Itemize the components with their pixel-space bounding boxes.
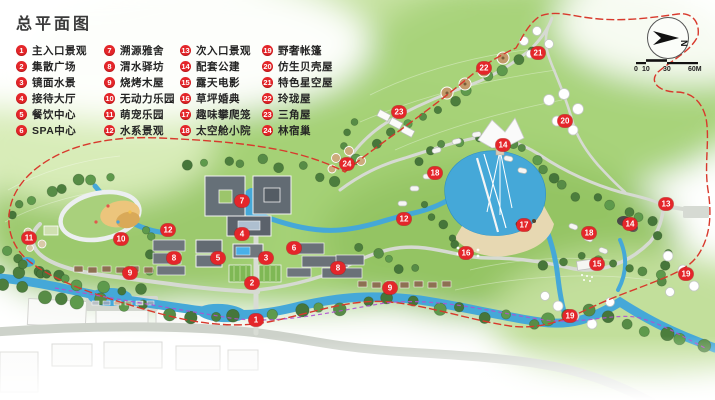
legend-item-12: 12水系景观 bbox=[104, 122, 180, 138]
legend-item-label: 趣味攀爬笼 bbox=[196, 107, 251, 122]
scale-bar: 0 10 30 60M bbox=[630, 57, 708, 76]
legend-item-label: 溯源雅舍 bbox=[120, 43, 164, 58]
legend-item-number: 11 bbox=[104, 109, 115, 120]
legend-item-17: 17趣味攀爬笼 bbox=[180, 106, 262, 122]
map-marker-6: 6 bbox=[287, 242, 302, 255]
legend-item-label: SPA中心 bbox=[32, 123, 76, 138]
legend-item-label: 餐饮中心 bbox=[32, 107, 76, 122]
legend-item-label: 太空舱小院 bbox=[196, 123, 251, 138]
map-marker-8: 8 bbox=[331, 262, 346, 275]
legend-item-2: 2集散广场 bbox=[16, 58, 104, 74]
legend-item-number: 10 bbox=[104, 93, 115, 104]
legend-item-number: 8 bbox=[104, 61, 115, 72]
map-marker-14: 14 bbox=[623, 218, 638, 231]
scale-label-30: 30 bbox=[663, 66, 671, 73]
scale-bar-labels: 0 10 30 60M bbox=[630, 66, 708, 76]
legend-panel: 总平面图 1主入口景观2集散广场3镜面水景4接待大厅5餐饮中心6SPA中心 7溯… bbox=[16, 10, 333, 138]
scale-bar-graphic bbox=[630, 57, 708, 66]
legend-item-label: 野奢帐篷 bbox=[278, 43, 322, 58]
map-marker-18: 18 bbox=[428, 167, 443, 180]
map-marker-18: 18 bbox=[582, 227, 597, 240]
legend-grid: 1主入口景观2集散广场3镜面水景4接待大厅5餐饮中心6SPA中心 7溯源雅舍8渭… bbox=[16, 42, 333, 138]
map-marker-9: 9 bbox=[383, 282, 398, 295]
map-marker-1: 1 bbox=[249, 314, 264, 327]
legend-item-9: 9烧烤木屋 bbox=[104, 74, 180, 90]
legend-item-22: 22玲珑屋 bbox=[262, 90, 333, 106]
legend-title: 总平面图 bbox=[16, 10, 333, 34]
legend-item-23: 23三角屋 bbox=[262, 106, 333, 122]
legend-item-7: 7溯源雅舍 bbox=[104, 42, 180, 58]
legend-item-label: 集散广场 bbox=[32, 59, 76, 74]
legend-item-4: 4接待大厅 bbox=[16, 90, 104, 106]
scale-label-0: 0 bbox=[634, 66, 638, 73]
legend-item-19: 19野奢帐篷 bbox=[262, 42, 333, 58]
map-marker-12: 12 bbox=[161, 224, 176, 237]
map-marker-19: 19 bbox=[679, 268, 694, 281]
legend-item-14: 14配套公建 bbox=[180, 58, 262, 74]
site-plan-page: 1234567889910111212131414151617181819192… bbox=[0, 0, 715, 400]
legend-item-label: 主入口景观 bbox=[32, 43, 87, 58]
legend-item-18: 18太空舱小院 bbox=[180, 122, 262, 138]
scale-label-60: 60M bbox=[688, 66, 702, 73]
legend-item-8: 8渭水驿坊 bbox=[104, 58, 180, 74]
legend-item-number: 6 bbox=[16, 125, 27, 136]
legend-item-number: 13 bbox=[180, 45, 191, 56]
map-marker-8: 8 bbox=[167, 252, 182, 265]
legend-item-15: 15露天电影 bbox=[180, 74, 262, 90]
map-marker-13: 13 bbox=[659, 198, 674, 211]
legend-item-label: 无动力乐园 bbox=[120, 91, 175, 106]
legend-item-label: 草坪婚典 bbox=[196, 91, 240, 106]
legend-item-21: 21特色星空屋 bbox=[262, 74, 333, 90]
map-marker-9: 9 bbox=[123, 267, 138, 280]
legend-item-6: 6SPA中心 bbox=[16, 122, 104, 138]
compass-north-label: N bbox=[679, 40, 689, 47]
legend-item-number: 3 bbox=[16, 77, 27, 88]
legend-item-number: 1 bbox=[16, 45, 27, 56]
map-marker-14: 14 bbox=[496, 139, 511, 152]
map-marker-21: 21 bbox=[531, 47, 546, 60]
map-marker-4: 4 bbox=[235, 228, 250, 241]
legend-item-label: 烧烤木屋 bbox=[120, 75, 164, 90]
legend-item-number: 9 bbox=[104, 77, 115, 88]
legend-item-number: 23 bbox=[262, 109, 273, 120]
legend-item-number: 2 bbox=[16, 61, 27, 72]
legend-item-number: 16 bbox=[180, 93, 191, 104]
map-marker-12: 12 bbox=[397, 213, 412, 226]
map-marker-5: 5 bbox=[211, 252, 226, 265]
legend-item-label: 仿生贝壳屋 bbox=[278, 59, 333, 74]
legend-item-3: 3镜面水景 bbox=[16, 74, 104, 90]
bottom-fade bbox=[0, 336, 715, 400]
legend-item-number: 20 bbox=[262, 61, 273, 72]
map-marker-16: 16 bbox=[459, 247, 474, 260]
legend-item-number: 19 bbox=[262, 45, 273, 56]
legend-item-20: 20仿生贝壳屋 bbox=[262, 58, 333, 74]
legend-column-2: 7溯源雅舍8渭水驿坊9烧烤木屋10无动力乐园11萌宠乐园12水系景观 bbox=[104, 42, 180, 138]
legend-item-13: 13次入口景观 bbox=[180, 42, 262, 58]
legend-item-label: 配套公建 bbox=[196, 59, 240, 74]
legend-item-24: 24林宿巢 bbox=[262, 122, 333, 138]
map-marker-19: 19 bbox=[563, 310, 578, 323]
legend-item-5: 5餐饮中心 bbox=[16, 106, 104, 122]
legend-item-number: 22 bbox=[262, 93, 273, 104]
map-marker-23: 23 bbox=[392, 106, 407, 119]
map-marker-22: 22 bbox=[477, 62, 492, 75]
legend-item-number: 24 bbox=[262, 125, 273, 136]
map-marker-7: 7 bbox=[235, 195, 250, 208]
legend-item-number: 21 bbox=[262, 77, 273, 88]
legend-item-10: 10无动力乐园 bbox=[104, 90, 180, 106]
legend-item-label: 水系景观 bbox=[120, 123, 164, 138]
legend-item-number: 17 bbox=[180, 109, 191, 120]
legend-item-label: 林宿巢 bbox=[278, 123, 311, 138]
legend-column-4: 19野奢帐篷20仿生贝壳屋21特色星空屋22玲珑屋23三角屋24林宿巢 bbox=[262, 42, 333, 138]
legend-item-number: 18 bbox=[180, 125, 191, 136]
legend-column-1: 1主入口景观2集散广场3镜面水景4接待大厅5餐饮中心6SPA中心 bbox=[16, 42, 104, 138]
legend-item-11: 11萌宠乐园 bbox=[104, 106, 180, 122]
legend-column-3: 13次入口景观14配套公建15露天电影16草坪婚典17趣味攀爬笼18太空舱小院 bbox=[180, 42, 262, 138]
legend-item-number: 5 bbox=[16, 109, 27, 120]
legend-item-label: 渭水驿坊 bbox=[120, 59, 164, 74]
map-marker-20: 20 bbox=[558, 115, 573, 128]
map-marker-15: 15 bbox=[590, 258, 605, 271]
map-marker-3: 3 bbox=[259, 252, 274, 265]
legend-item-16: 16草坪婚典 bbox=[180, 90, 262, 106]
legend-item-number: 12 bbox=[104, 125, 115, 136]
legend-item-label: 镜面水景 bbox=[32, 75, 76, 90]
scale-label-10: 10 bbox=[642, 66, 650, 73]
legend-item-label: 特色星空屋 bbox=[278, 75, 333, 90]
legend-item-number: 4 bbox=[16, 93, 27, 104]
legend-item-label: 次入口景观 bbox=[196, 43, 251, 58]
legend-item-number: 7 bbox=[104, 45, 115, 56]
legend-item-label: 萌宠乐园 bbox=[120, 107, 164, 122]
legend-item-number: 15 bbox=[180, 77, 191, 88]
map-marker-24: 24 bbox=[340, 158, 355, 171]
map-marker-11: 11 bbox=[22, 232, 37, 245]
legend-item-label: 露天电影 bbox=[196, 75, 240, 90]
legend-item-number: 14 bbox=[180, 61, 191, 72]
map-marker-17: 17 bbox=[517, 219, 532, 232]
legend-item-label: 三角屋 bbox=[278, 107, 311, 122]
map-marker-2: 2 bbox=[245, 277, 260, 290]
legend-item-1: 1主入口景观 bbox=[16, 42, 104, 58]
legend-item-label: 接待大厅 bbox=[32, 91, 76, 106]
map-marker-10: 10 bbox=[114, 233, 129, 246]
legend-item-label: 玲珑屋 bbox=[278, 91, 311, 106]
